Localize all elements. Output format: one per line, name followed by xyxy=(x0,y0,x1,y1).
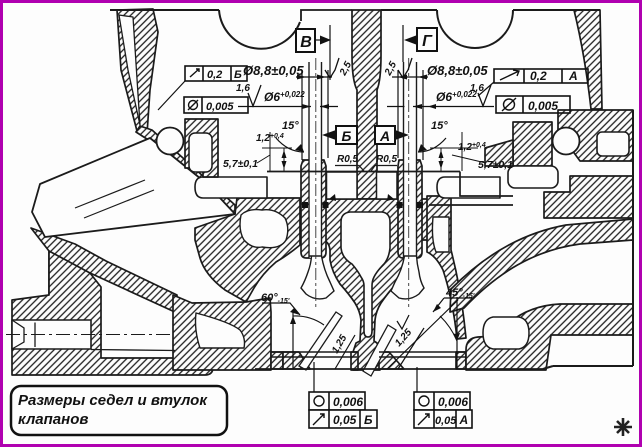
svg-text:А: А xyxy=(459,413,469,427)
svg-text:0,006: 0,006 xyxy=(438,395,468,409)
svg-text:Г: Г xyxy=(422,33,433,50)
svg-text:0,2: 0,2 xyxy=(207,69,222,81)
svg-text:15°: 15° xyxy=(282,120,299,132)
svg-text:5,7±0,1: 5,7±0,1 xyxy=(478,159,513,171)
svg-text:0,005: 0,005 xyxy=(528,99,558,113)
svg-text:Ø8,8±0,05: Ø8,8±0,05 xyxy=(243,63,304,78)
svg-text:Ø8,8±0,05: Ø8,8±0,05 xyxy=(427,63,488,78)
svg-text:R0,5: R0,5 xyxy=(376,154,398,165)
svg-text:0,006: 0,006 xyxy=(333,395,363,409)
svg-text:R0,5: R0,5 xyxy=(337,154,359,165)
svg-text:0,05: 0,05 xyxy=(333,413,357,427)
svg-text:Б: Б xyxy=(342,128,352,144)
svg-text:клапанов: клапанов xyxy=(18,411,88,428)
svg-text:А: А xyxy=(379,128,390,144)
svg-text:1,6: 1,6 xyxy=(236,83,250,94)
svg-text:Размеры седел и втулок: Размеры седел и втулок xyxy=(18,392,208,409)
svg-text:5,7±0,1: 5,7±0,1 xyxy=(223,158,258,170)
svg-text:0,005: 0,005 xyxy=(206,101,234,113)
svg-text:Б: Б xyxy=(234,69,242,81)
svg-text:А: А xyxy=(568,69,578,83)
svg-text:1,6: 1,6 xyxy=(470,83,484,94)
svg-text:15°: 15° xyxy=(431,120,448,132)
svg-text:0,05: 0,05 xyxy=(435,415,457,427)
svg-text:0,2: 0,2 xyxy=(530,69,547,83)
svg-text:Б: Б xyxy=(364,413,373,427)
svg-text:В: В xyxy=(300,34,312,51)
